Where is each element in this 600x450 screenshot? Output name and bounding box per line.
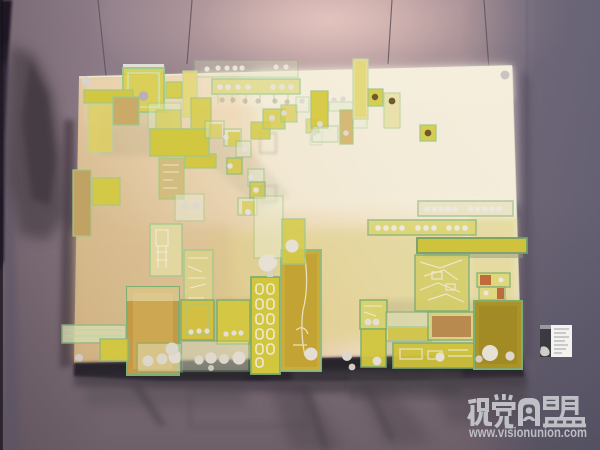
svg-text:www.visionunion.com: www.visionunion.com: [468, 425, 587, 440]
